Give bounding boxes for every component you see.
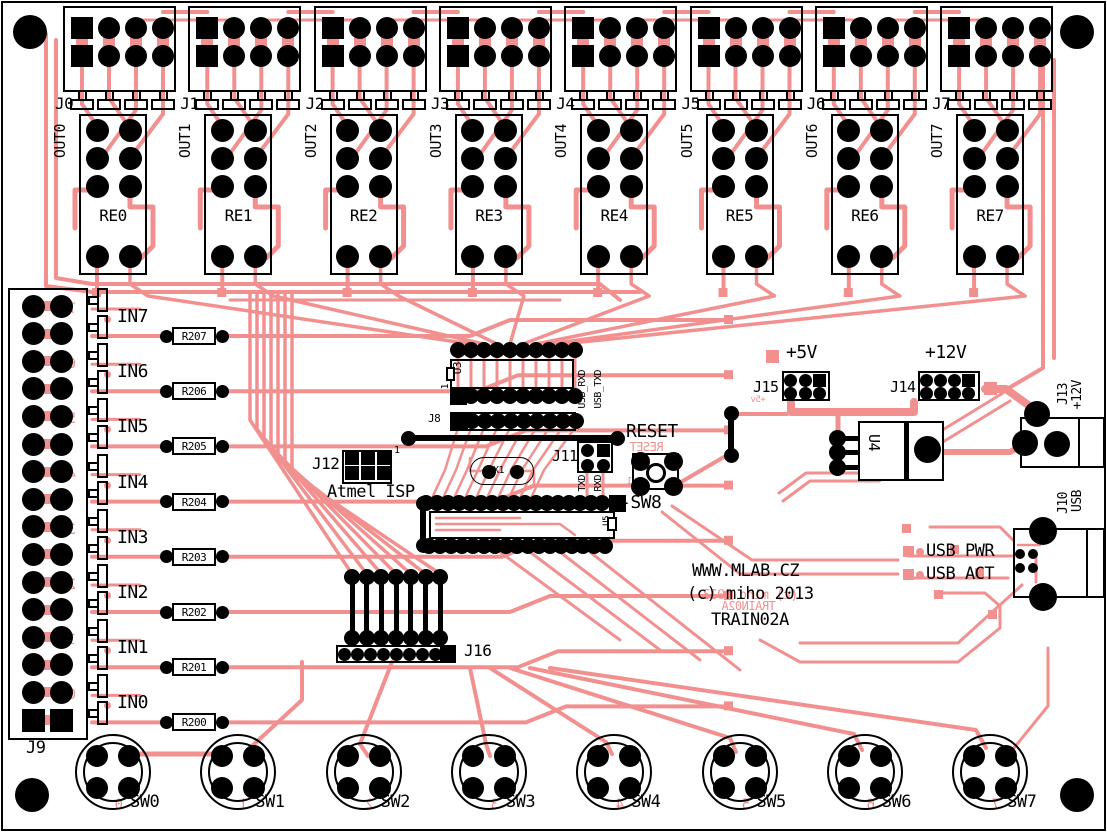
jumper-pad bbox=[388, 569, 404, 585]
connector-pad bbox=[904, 17, 926, 39]
switch-pad bbox=[745, 745, 767, 767]
input-connector-pad bbox=[50, 377, 73, 400]
connector-label: J3 bbox=[431, 96, 449, 112]
switch-pad bbox=[494, 745, 516, 767]
component-pin bbox=[88, 509, 108, 533]
connector-pad bbox=[474, 17, 496, 39]
component-pin bbox=[778, 90, 802, 110]
resistor-label: R203 bbox=[172, 552, 216, 563]
power-5v-label: +5V bbox=[786, 344, 817, 362]
jumper-pad bbox=[418, 569, 434, 585]
relay-label: RE2 bbox=[330, 208, 398, 224]
jack-label: +12V bbox=[1071, 380, 1084, 409]
jumper-wire bbox=[423, 578, 428, 638]
input-connector-pad bbox=[50, 571, 73, 594]
crystal-ref: X1 bbox=[493, 466, 504, 476]
jumper-wire bbox=[364, 578, 369, 638]
j15-pad bbox=[799, 387, 812, 400]
connector-pad bbox=[1002, 45, 1024, 67]
usb-pwr-led-label: USB PWR bbox=[926, 543, 994, 560]
component-pin bbox=[249, 90, 273, 110]
jack-hole bbox=[1024, 401, 1050, 427]
connector-pad bbox=[125, 17, 147, 39]
j14-pad bbox=[934, 374, 947, 387]
jumper-pad bbox=[401, 431, 416, 446]
j15-pad bbox=[813, 374, 826, 387]
component-pin bbox=[947, 90, 971, 110]
relay-pad bbox=[494, 175, 517, 198]
component-pin bbox=[222, 90, 246, 110]
jumper-block-pad bbox=[390, 648, 403, 661]
switch-pad bbox=[838, 777, 860, 799]
component-pin bbox=[724, 90, 748, 110]
relay-pad bbox=[745, 147, 768, 170]
resistor-pad bbox=[216, 495, 229, 508]
usb-ref: J10 bbox=[1057, 492, 1070, 514]
connector-pad bbox=[349, 45, 371, 67]
pcb-board: WWW.MLAB.CZ (c) miho 2013 (c) miho 2013 … bbox=[0, 0, 1107, 832]
input-label: IN3 bbox=[117, 529, 148, 547]
input-connector-pad bbox=[22, 709, 45, 732]
relay-pad bbox=[461, 147, 484, 170]
legend-board-name: TRAIN02A bbox=[711, 612, 789, 629]
relay-pad bbox=[837, 245, 860, 268]
regulator-ref: U4 bbox=[866, 434, 881, 451]
connector-pad bbox=[850, 17, 872, 39]
component-pin bbox=[88, 674, 108, 698]
connector-pad bbox=[698, 17, 720, 39]
relay-pad bbox=[745, 175, 768, 198]
relay-pad bbox=[963, 245, 986, 268]
connector-pad bbox=[1029, 45, 1051, 67]
resistor-pad bbox=[216, 661, 229, 674]
power-12v-label: +12V bbox=[925, 344, 966, 362]
component-pin bbox=[1028, 90, 1052, 110]
reset-label: RESET bbox=[626, 423, 678, 441]
reset-pad bbox=[664, 452, 683, 471]
copper-trace bbox=[530, 552, 660, 650]
jumper-pad bbox=[724, 406, 739, 421]
jumper-block-pad bbox=[416, 648, 429, 661]
relay-pad bbox=[587, 147, 610, 170]
input-label: IN1 bbox=[117, 639, 148, 657]
relay-pad bbox=[244, 175, 267, 198]
switch-label: SW7 bbox=[1007, 794, 1036, 811]
connector-pad bbox=[725, 17, 747, 39]
relay-pad bbox=[712, 245, 735, 268]
usb-act-led-label: USB ACT bbox=[926, 566, 994, 583]
switch-pad bbox=[462, 745, 484, 767]
usb-hole bbox=[1029, 583, 1057, 611]
relay-pad bbox=[712, 175, 735, 198]
isp-pad bbox=[345, 466, 359, 480]
reset-pad bbox=[664, 477, 683, 496]
connector-pad bbox=[152, 17, 174, 39]
smd-pad bbox=[902, 524, 911, 533]
connector-pad bbox=[877, 45, 899, 67]
relay-pad bbox=[244, 147, 267, 170]
relay-pad bbox=[336, 245, 359, 268]
component-pin bbox=[276, 90, 300, 110]
resistor-pad bbox=[216, 550, 229, 563]
relay-pad bbox=[336, 119, 359, 142]
connector-pad bbox=[403, 17, 425, 39]
j14-pad bbox=[948, 374, 961, 387]
switch-pad bbox=[995, 745, 1017, 767]
resistor-pad bbox=[160, 495, 173, 508]
jumper-block-pad bbox=[351, 648, 364, 661]
copper-trace bbox=[252, 662, 302, 746]
crystal-pad bbox=[510, 465, 524, 479]
resistor-pad bbox=[160, 440, 173, 453]
jumper-wire bbox=[350, 578, 355, 638]
reset-plunger bbox=[646, 463, 666, 483]
connector-pad bbox=[322, 17, 344, 39]
relay-pad bbox=[369, 147, 392, 170]
serial-pad bbox=[597, 444, 610, 457]
connector-pad bbox=[501, 45, 523, 67]
smd-pad bbox=[988, 610, 997, 619]
relay-pad bbox=[494, 245, 517, 268]
input-connector-pad bbox=[50, 681, 73, 704]
smd-pad bbox=[969, 288, 978, 297]
relay-pad bbox=[119, 175, 142, 198]
serial-pad bbox=[597, 459, 610, 472]
component-pin bbox=[124, 90, 148, 110]
relay-pad bbox=[86, 245, 109, 268]
relay-pad bbox=[837, 147, 860, 170]
usb-signal-pad bbox=[1015, 549, 1025, 559]
input-connector-pad bbox=[22, 598, 45, 621]
resistor-label: R200 bbox=[172, 717, 216, 728]
usb-signal-pad bbox=[1015, 563, 1025, 573]
component-pin bbox=[88, 315, 108, 339]
component-pin bbox=[849, 90, 873, 110]
connector-pad bbox=[474, 45, 496, 67]
relay-pad bbox=[336, 147, 359, 170]
input-connector-pad bbox=[22, 488, 45, 511]
switch-pad bbox=[462, 777, 484, 799]
component-pin bbox=[151, 90, 175, 110]
input-connector-pad bbox=[50, 350, 73, 373]
connector-pad bbox=[376, 17, 398, 39]
connector-pad bbox=[403, 45, 425, 67]
isp-pin1: 1 bbox=[394, 446, 400, 456]
jack-divider bbox=[1078, 417, 1080, 468]
relay-label: RE1 bbox=[204, 208, 272, 224]
component-pin bbox=[88, 454, 108, 478]
switch-label: SW6 bbox=[882, 794, 911, 811]
component-pin bbox=[571, 90, 595, 110]
component-pin bbox=[88, 343, 108, 367]
isp-pad bbox=[361, 466, 375, 480]
connector-label: J5 bbox=[682, 96, 700, 112]
switch-label: SW4 bbox=[631, 794, 660, 811]
input-connector-pad bbox=[22, 626, 45, 649]
switch-pad bbox=[870, 745, 892, 767]
relay-label: RE5 bbox=[706, 208, 774, 224]
input-connector-pad bbox=[50, 295, 73, 318]
jumper-wire bbox=[379, 578, 384, 638]
mcu-outline bbox=[429, 511, 615, 539]
component-pin bbox=[652, 90, 676, 110]
input-connector-pad bbox=[50, 433, 73, 456]
copper-trace bbox=[672, 506, 898, 560]
relay-label: RE3 bbox=[455, 208, 523, 224]
serial-usb-txd-label: USB_TXD bbox=[594, 370, 604, 409]
relay-pad bbox=[336, 175, 359, 198]
isp-ref: J12 bbox=[312, 456, 339, 472]
component-pin bbox=[751, 90, 775, 110]
j14-pad bbox=[920, 387, 933, 400]
smd-pad bbox=[934, 590, 943, 599]
input-connector-pad bbox=[50, 543, 73, 566]
smd-pad bbox=[724, 370, 733, 379]
jack-hole bbox=[1044, 431, 1070, 457]
component-pin bbox=[1001, 90, 1025, 110]
connector-pad bbox=[752, 45, 774, 67]
input-connector-pad bbox=[22, 405, 45, 428]
resistor-pad bbox=[216, 330, 229, 343]
connector-pad bbox=[71, 45, 93, 67]
resistor-pad bbox=[160, 716, 173, 729]
led-dot bbox=[916, 548, 924, 556]
switch-pad bbox=[838, 745, 860, 767]
relay-pad bbox=[745, 245, 768, 268]
jumper-pad bbox=[724, 448, 739, 463]
component-pin bbox=[88, 591, 108, 615]
jack-hole bbox=[1012, 430, 1038, 456]
component-pin bbox=[88, 425, 108, 449]
u3-pin1: 1 bbox=[441, 384, 451, 390]
connector-label: J4 bbox=[556, 96, 574, 112]
input-label: IN5 bbox=[117, 418, 148, 436]
smd-pad bbox=[766, 350, 779, 363]
u3-outline bbox=[450, 359, 574, 389]
serial-pad bbox=[581, 459, 594, 472]
connector-pad bbox=[528, 17, 550, 39]
relay-pad bbox=[86, 147, 109, 170]
j8-pad bbox=[568, 413, 584, 429]
connector-pad bbox=[572, 17, 594, 39]
copper-trace bbox=[560, 552, 700, 660]
serial-ref: J11 bbox=[552, 449, 578, 464]
component-pin bbox=[375, 90, 399, 110]
relay-pad bbox=[870, 245, 893, 268]
component-pin bbox=[88, 481, 108, 505]
resistor-pad bbox=[216, 606, 229, 619]
isp-pad bbox=[377, 451, 391, 465]
mcu-pad bbox=[597, 538, 613, 554]
jumper-pad bbox=[344, 630, 360, 646]
input-connector-pad bbox=[22, 322, 45, 345]
connector-pad bbox=[71, 17, 93, 39]
component-pin bbox=[88, 619, 108, 643]
connector-pad bbox=[447, 45, 469, 67]
component-pin bbox=[903, 90, 927, 110]
input-label: IN4 bbox=[117, 474, 148, 492]
switch-pad bbox=[86, 777, 108, 799]
input-connector-pad bbox=[22, 350, 45, 373]
serial-pad bbox=[581, 444, 594, 457]
relay-pad bbox=[587, 245, 610, 268]
relay-pad bbox=[620, 119, 643, 142]
jumper-wire bbox=[408, 578, 413, 638]
copper-trace bbox=[530, 668, 862, 750]
j14-pad bbox=[962, 387, 975, 400]
resistor-pad bbox=[160, 550, 173, 563]
component-pin bbox=[974, 90, 998, 110]
switch-label: SW1 bbox=[255, 794, 284, 811]
usb-hole bbox=[1029, 517, 1057, 545]
relay-pad bbox=[996, 147, 1019, 170]
u3-pad bbox=[567, 342, 583, 358]
input-connector-pad bbox=[50, 460, 73, 483]
copper-trace bbox=[930, 527, 1013, 540]
isp-name: Atmel ISP bbox=[327, 484, 415, 501]
relay-pad bbox=[712, 119, 735, 142]
input-connector-pad bbox=[22, 515, 45, 538]
connector-pad bbox=[877, 17, 899, 39]
connector-pad bbox=[322, 45, 344, 67]
switch-pad bbox=[118, 745, 140, 767]
connector-label: J6 bbox=[807, 96, 825, 112]
input-connector-pad bbox=[50, 515, 73, 538]
connector-pad bbox=[975, 45, 997, 67]
reset-label-mirror: RESET bbox=[630, 441, 664, 453]
connector-pad bbox=[98, 17, 120, 39]
copper-trace bbox=[676, 454, 729, 485]
jumper-block-pad bbox=[403, 648, 416, 661]
connector-pad bbox=[98, 45, 120, 67]
component-pin bbox=[88, 564, 108, 588]
usb-signal-pad bbox=[1028, 549, 1038, 559]
relay-pad bbox=[996, 175, 1019, 198]
input-connector-pad bbox=[22, 433, 45, 456]
relay-pad bbox=[870, 119, 893, 142]
connector-pad bbox=[975, 17, 997, 39]
smd-pad bbox=[844, 288, 853, 297]
relay-pad bbox=[494, 119, 517, 142]
j15-pad bbox=[784, 374, 797, 387]
regulator-tab-bar bbox=[904, 421, 909, 481]
power-5v-ref: J15 bbox=[753, 380, 779, 395]
regulator-pad bbox=[829, 459, 846, 476]
relay-pad bbox=[86, 175, 109, 198]
connector-pad bbox=[779, 17, 801, 39]
switch-label: SW3 bbox=[506, 794, 535, 811]
relay-pad bbox=[712, 147, 735, 170]
input-label: IN6 bbox=[117, 363, 148, 381]
connector-label: J7 bbox=[932, 96, 950, 112]
switch-label: SW0 bbox=[130, 794, 159, 811]
input-connector-ref: J9 bbox=[26, 740, 45, 757]
resistor-pad bbox=[160, 606, 173, 619]
connector-pad bbox=[1002, 17, 1024, 39]
mounting-hole bbox=[1060, 778, 1094, 812]
relay-pad bbox=[461, 175, 484, 198]
input-label: IN2 bbox=[117, 584, 148, 602]
isp-pad bbox=[345, 451, 359, 465]
component-pin bbox=[625, 90, 649, 110]
input-connector-outline bbox=[8, 288, 88, 740]
connector-pad bbox=[349, 17, 371, 39]
connector-pad bbox=[698, 45, 720, 67]
relay-pad bbox=[620, 245, 643, 268]
component-pin bbox=[876, 90, 900, 110]
relay-pad bbox=[837, 175, 860, 198]
relay-pad bbox=[369, 119, 392, 142]
component-pin bbox=[88, 398, 108, 422]
component-pin bbox=[88, 701, 108, 725]
relay-pad bbox=[996, 119, 1019, 142]
resistor-label: R202 bbox=[172, 607, 216, 618]
connector-pad bbox=[528, 45, 550, 67]
switch-label: SW5 bbox=[757, 794, 786, 811]
smd-pad bbox=[724, 481, 733, 490]
switch-pad bbox=[86, 745, 108, 767]
relay-pad bbox=[996, 245, 1019, 268]
input-connector-pad bbox=[50, 322, 73, 345]
connector-label: J0 bbox=[55, 96, 73, 112]
relay-out-label: OUT6 bbox=[805, 124, 820, 158]
j14-pad bbox=[948, 387, 961, 400]
connector-pad bbox=[752, 17, 774, 39]
component-pin bbox=[446, 90, 470, 110]
relay-pad bbox=[837, 119, 860, 142]
component-pin bbox=[70, 90, 94, 110]
jumper-wire bbox=[394, 578, 399, 638]
resistor-label: R204 bbox=[172, 497, 216, 508]
input-connector-pad bbox=[22, 681, 45, 704]
jumper-block-pad bbox=[338, 648, 351, 661]
jumper-pad bbox=[403, 630, 419, 646]
component-pin bbox=[822, 90, 846, 110]
serial-txd-label: TXD bbox=[578, 475, 588, 492]
connector-label: J2 bbox=[306, 96, 324, 112]
relay-pad bbox=[461, 245, 484, 268]
input-connector-pad bbox=[50, 626, 73, 649]
relay-pad bbox=[369, 175, 392, 198]
led-dot bbox=[916, 571, 924, 579]
component-pin bbox=[348, 90, 372, 110]
power-12v-ref: J14 bbox=[890, 380, 916, 395]
relay-out-label: OUT3 bbox=[429, 124, 444, 158]
connector-pad bbox=[725, 45, 747, 67]
component-pin bbox=[598, 90, 622, 110]
switch-label: SW2 bbox=[381, 794, 410, 811]
jumper-block-pad bbox=[440, 646, 456, 662]
connector-pad bbox=[904, 45, 926, 67]
resistor-label: R206 bbox=[172, 386, 216, 397]
j15-pad bbox=[813, 387, 826, 400]
connector-pad bbox=[196, 45, 218, 67]
j15-pad bbox=[784, 387, 797, 400]
resistor-label: R207 bbox=[172, 331, 216, 342]
isp-pad bbox=[377, 466, 391, 480]
usb-signal-pad bbox=[1028, 563, 1038, 573]
relay-out-label: OUT1 bbox=[178, 124, 193, 158]
component-pin bbox=[402, 90, 426, 110]
usb-outline bbox=[1013, 528, 1105, 598]
component-pin bbox=[97, 90, 121, 110]
jumper-wire bbox=[438, 578, 443, 638]
jumper-pad bbox=[418, 630, 434, 646]
jumper-block-pad bbox=[377, 648, 390, 661]
jumper-pad bbox=[359, 569, 375, 585]
component-pin bbox=[88, 288, 108, 312]
connector-pad bbox=[823, 17, 845, 39]
